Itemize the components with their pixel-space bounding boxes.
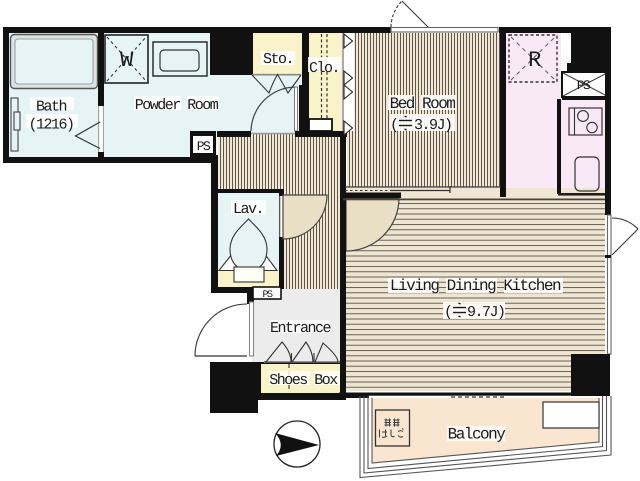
svg-text:PS: PS (197, 139, 211, 154)
svg-text:Clo.: Clo. (309, 60, 339, 77)
svg-text:3.9J): 3.9J) (414, 117, 452, 134)
svg-text:Entrance: Entrance (270, 320, 332, 337)
svg-text:Shoes Box: Shoes Box (269, 372, 338, 389)
svg-text:PS: PS (577, 78, 591, 93)
svg-text:(: ( (444, 304, 452, 321)
svg-text:Bath: Bath (36, 99, 67, 116)
svg-text:9.7J): 9.7J) (467, 304, 505, 321)
svg-text:Powder Room: Powder Room (135, 97, 219, 114)
svg-text:Balcony: Balcony (448, 426, 507, 444)
svg-text:(: ( (390, 117, 398, 134)
svg-text:PS: PS (262, 290, 273, 301)
svg-text:Lav.: Lav. (233, 201, 263, 218)
svg-text:R: R (528, 48, 541, 73)
svg-text:Bed Room: Bed Room (390, 95, 456, 113)
svg-text:Sto.: Sto. (263, 51, 293, 68)
svg-text:Living Dining Kitchen: Living Dining Kitchen (390, 277, 561, 295)
svg-text:(1216): (1216) (28, 117, 73, 134)
